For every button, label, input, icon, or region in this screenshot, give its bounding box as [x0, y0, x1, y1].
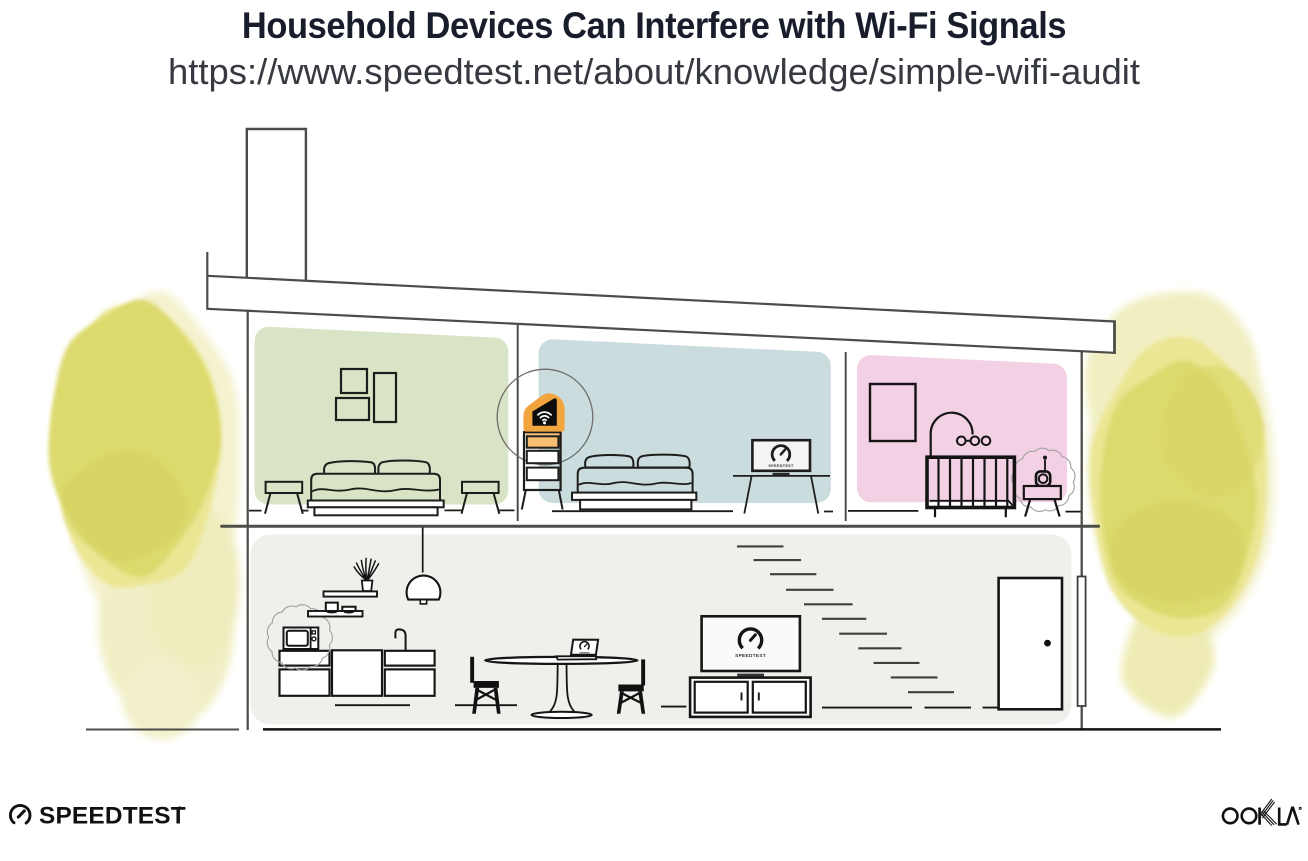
svg-text:SPEEDTEST: SPEEDTEST [39, 803, 186, 830]
svg-text:SPEEDTEST: SPEEDTEST [768, 464, 794, 468]
svg-text:SPEEDTEST: SPEEDTEST [735, 653, 766, 658]
